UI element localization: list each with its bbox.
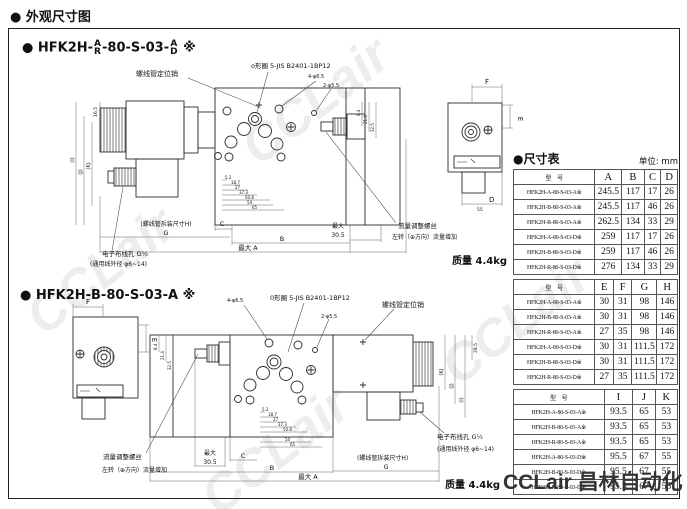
table-row: HFK2H-A-80-S-03-A※93.56553: [514, 405, 678, 420]
value-cell: 27: [595, 370, 614, 385]
value-cell: 172: [657, 355, 678, 370]
table-row: HFK2H-A-80-S-03-D※2591171726: [514, 230, 678, 245]
value-cell: 134: [622, 260, 645, 275]
value-cell: 33: [644, 215, 661, 230]
table-row: HFK2H-R-80-S-03-A※262.51343329: [514, 215, 678, 230]
vchain-dim: 21.4: [363, 115, 368, 124]
chain-dim-2: 65: [290, 442, 296, 447]
value-cell: 26: [661, 230, 678, 245]
dim-max-A: 最大 A: [238, 243, 258, 252]
dim-G: G: [163, 229, 168, 237]
model-cell: HFK2H-R-80-S-03-A※: [514, 325, 595, 340]
dim-E2: E: [150, 338, 158, 342]
col-D: D: [661, 170, 678, 185]
model-cell: HFK2H-A-80-S-03-D※: [514, 450, 605, 465]
dim-55: 55: [477, 207, 483, 213]
drawing-hfk2h-b: F E 4-φ6.5 0形圈 5-JIS B2401-1BP12 螺线管定位销 …: [16, 290, 512, 500]
leader-lines-2: [146, 303, 444, 453]
label-flow-increase-2: 左转（⊕方向）流量增加: [102, 466, 167, 474]
model-header: 型 号: [514, 170, 595, 185]
page-title: ● 外观尺寸图: [10, 6, 91, 25]
table-row: HFK2H-R-80-S-03-D※2761343329: [514, 260, 678, 275]
value-cell: 262.5: [595, 215, 622, 230]
label-4-holes: 4-φ6.5: [308, 74, 324, 80]
label-wiring-hole-2: 电子布线孔 G½: [437, 432, 483, 441]
value-cell: 65: [633, 420, 655, 435]
label-flow-screw-2: 流量调整螺丝: [103, 452, 143, 461]
value-cell: 67: [633, 450, 655, 465]
dim-G2: G: [383, 463, 388, 471]
value-cell: 93.5: [604, 420, 633, 435]
vchain-dim: 8.4: [356, 109, 361, 116]
mass-label: 质量 4.4kg: [452, 254, 507, 267]
dimension-table-abcd: 型 号 A B C D HFK2H-A-80-S-03-A※245.511717…: [513, 169, 678, 275]
table-row: HFK2H-A-80-S-03-D※3031111.5172: [514, 340, 678, 355]
value-cell: 35: [613, 325, 632, 340]
table-row: HFK2H-B-80-S-03-A※303198146: [514, 310, 678, 325]
chain-dim-2: 50.8: [283, 427, 292, 432]
flow-adjust-fitting-2: [195, 342, 230, 365]
table-row: HFK2H-A-80-S-03-A※245.51171726: [514, 185, 678, 200]
value-cell: 30: [595, 295, 614, 310]
model-cell: HFK2H-A-80-S-03-D※: [514, 340, 595, 355]
solenoid-assembly-2: [333, 335, 433, 420]
dim-F2: F: [86, 298, 90, 306]
model-cell: HFK2H-B-80-S-03-A※: [514, 420, 605, 435]
label-oring-2: 0形圈 5-JIS B2401-1BP12: [270, 294, 350, 302]
model-cell: HFK2H-A-80-S-03-A※: [514, 185, 595, 200]
dim-I: (I): [70, 157, 76, 162]
value-cell: 134: [622, 215, 645, 230]
value-cell: 26: [661, 200, 678, 215]
dim-28-5: 28.5: [473, 343, 479, 353]
value-cell: 53: [655, 420, 677, 435]
dim-B2: B: [270, 464, 274, 472]
col-B: B: [622, 170, 645, 185]
dim-D: D: [489, 196, 494, 204]
label-wire-od: (通用线外径 φ6~14): [90, 260, 147, 268]
table-title: ●尺寸表: [513, 150, 559, 167]
model-title-1-prefix: ● HFK2H-: [22, 41, 93, 56]
model-cell: HFK2H-B-80-S-03-A※: [514, 310, 595, 325]
value-cell: 26: [661, 185, 678, 200]
value-cell: 95.5: [604, 450, 633, 465]
value-cell: 27: [595, 325, 614, 340]
value-cell: 117: [622, 245, 645, 260]
label-2-holes: 2-φ5.5: [323, 83, 339, 89]
value-cell: 117: [622, 230, 645, 245]
value-cell: 30: [595, 340, 614, 355]
drawing-hfk2h-ar: 螺线管定位销 o形圈 5-JIS B2401-1BP12 4-φ6.5 2-φ5…: [16, 56, 512, 281]
dim-C: C: [220, 220, 225, 228]
label-solenoid-pin: 螺线管定位销: [136, 69, 178, 78]
value-cell: 31: [613, 310, 632, 325]
value-cell: 93.5: [604, 435, 633, 450]
dimension-tables: ●尺寸表 单位: mm 型 号 A B C D HFK2H-A-80-S-03-…: [513, 150, 678, 499]
table-header-row: 型 号 E F G H: [514, 280, 678, 295]
col-K: K: [655, 390, 677, 405]
col-C: C: [644, 170, 661, 185]
value-cell: 245.5: [595, 185, 622, 200]
col-I: I: [604, 390, 633, 405]
value-cell: 35: [613, 370, 632, 385]
label-flow-increase: 左转（⊕方向）流量增加: [392, 233, 457, 241]
value-cell: 111.5: [632, 355, 657, 370]
brand-watermark: CCLair 昌林自动化: [503, 466, 683, 496]
dim-30-5: 30.5: [331, 232, 345, 239]
value-cell: 30: [595, 355, 614, 370]
table-row: HFK2H-A-80-S-03-A※303198146: [514, 295, 678, 310]
label-2-holes-2: 2-φ5.5: [321, 314, 337, 320]
value-cell: 53: [655, 435, 677, 450]
model-cell: HFK2H-R-80-S-03-A※: [514, 435, 605, 450]
value-cell: 111.5: [632, 340, 657, 355]
dim-J: (J): [78, 169, 84, 174]
table-header-row: 型 号 I J K: [514, 390, 678, 405]
model-cell: HFK2H-B-80-S-03-A※: [514, 200, 595, 215]
col-F: F: [613, 280, 632, 295]
value-cell: 65: [633, 435, 655, 450]
model-title-1-suffix: ※: [183, 41, 196, 56]
dim-I2: (I): [459, 397, 465, 402]
chain-dim: 65: [252, 205, 258, 210]
dim-K: (K): [86, 162, 92, 169]
value-cell: 276: [595, 260, 622, 275]
model-title-1: ● HFK2H-AR-80-S-03-AD ※: [22, 40, 196, 56]
dim-C2: C: [241, 452, 246, 460]
table-title-row: ●尺寸表 单位: mm: [513, 150, 678, 167]
dim-30-5-2: 30.5: [203, 459, 217, 466]
dim-J2: (J): [449, 383, 455, 388]
value-cell: 46: [644, 245, 661, 260]
dim-max-A2: 最大 A: [298, 472, 318, 481]
value-cell: 259: [595, 230, 622, 245]
col-E: E: [595, 280, 614, 295]
label-removal-h: (螺线管拆装尺寸H): [140, 220, 191, 228]
value-cell: 245.5: [595, 200, 622, 215]
label-wiring-hole: 电子布线孔 G½: [102, 249, 148, 258]
value-cell: 33: [644, 260, 661, 275]
value-cell: 98: [632, 295, 657, 310]
label-4-holes-2: 4-φ6.5: [227, 298, 243, 304]
value-cell: 46: [644, 200, 661, 215]
table-row: HFK2H-B-80-S-03-A※93.56553: [514, 420, 678, 435]
table-row: HFK2H-B-80-S-03-D※3031111.5172: [514, 355, 678, 370]
value-cell: 29: [661, 215, 678, 230]
dim-16-5: 16.5: [93, 107, 99, 117]
label-max: 最大: [332, 222, 344, 230]
model-option-ar: AR: [94, 40, 101, 56]
mass-label-2: 质量 4.4kg: [445, 478, 500, 491]
model-cell: HFK2H-R-80-S-03-D※: [514, 370, 595, 385]
model-option-ad: AD: [170, 40, 177, 56]
value-cell: 17: [644, 230, 661, 245]
value-cell: 55: [655, 450, 677, 465]
end-view-2: [73, 317, 138, 419]
value-cell: 31: [613, 295, 632, 310]
value-cell: 117: [622, 185, 645, 200]
col-J: J: [633, 390, 655, 405]
table-unit: 单位: mm: [639, 155, 678, 167]
catalog-page: CCLair CCLair CCLair CCLair ● 外观尺寸图 ● HF…: [0, 0, 687, 509]
value-cell: 117: [622, 200, 645, 215]
value-cell: 26: [661, 245, 678, 260]
table-row: HFK2H-B-80-S-03-D※2591174626: [514, 245, 678, 260]
value-cell: 98: [632, 310, 657, 325]
value-cell: 259: [595, 245, 622, 260]
dimension-table-efgh: 型 号 E F G H HFK2H-A-80-S-03-A※303198146H…: [513, 279, 678, 385]
label-oring: o形圈 5-JIS B2401-1BP12: [251, 62, 331, 70]
label-flow-screw: 流量调整螺丝: [398, 221, 438, 230]
value-cell: 146: [657, 295, 678, 310]
table-row: HFK2H-R-80-S-03-A※273598146: [514, 325, 678, 340]
col-H: H: [657, 280, 678, 295]
model-cell: HFK2H-B-80-S-03-D※: [514, 245, 595, 260]
label-wire-od-2: (通用线外径 φ6~14): [437, 445, 494, 453]
table-header-row: 型 号 A B C D: [514, 170, 678, 185]
value-cell: 30: [595, 310, 614, 325]
model-header: 型 号: [514, 280, 595, 295]
vchain-dim-2: 8.4: [153, 343, 158, 350]
vchain-dim-2: 32.5: [167, 361, 172, 370]
value-cell: 146: [657, 310, 678, 325]
end-view: [448, 103, 502, 193]
value-cell: 146: [657, 325, 678, 340]
value-cell: 172: [657, 340, 678, 355]
dim-B: B: [280, 235, 284, 243]
value-cell: 65: [633, 405, 655, 420]
col-A: A: [595, 170, 622, 185]
value-cell: 53: [655, 405, 677, 420]
dim-E: E: [516, 117, 524, 121]
label-removal-h-2: (螺线管拆装尺寸H): [357, 454, 408, 462]
dim-F: F: [485, 78, 489, 86]
table-row: HFK2H-A-80-S-03-D※95.56755: [514, 450, 678, 465]
table-row: HFK2H-R-80-S-03-A※93.56553: [514, 435, 678, 450]
value-cell: 31: [613, 355, 632, 370]
value-cell: 98: [632, 325, 657, 340]
value-cell: 172: [657, 370, 678, 385]
table-row: HFK2H-B-80-S-03-A※245.51174626: [514, 200, 678, 215]
label-solenoid-pin-2: 螺线管定位销: [382, 300, 424, 309]
model-cell: HFK2H-R-80-S-03-A※: [514, 215, 595, 230]
flow-adjust-fitting: [321, 114, 365, 139]
valve-body: [215, 88, 401, 225]
model-title-1-mid: -80-S-03-: [102, 41, 169, 56]
dim-K2: (K): [439, 368, 445, 375]
model-cell: HFK2H-A-80-S-03-A※: [514, 405, 605, 420]
col-G: G: [632, 280, 657, 295]
model-cell: HFK2H-B-80-S-03-D※: [514, 355, 595, 370]
label-max-2: 最大: [204, 449, 216, 457]
vchain-dim-2: 21.4: [160, 351, 165, 360]
model-cell: HFK2H-A-80-S-03-A※: [514, 295, 595, 310]
value-cell: 17: [644, 185, 661, 200]
value-cell: 29: [661, 260, 678, 275]
model-header: 型 号: [514, 390, 605, 405]
valve-body-2: [150, 335, 333, 437]
value-cell: 31: [613, 340, 632, 355]
value-cell: 93.5: [604, 405, 633, 420]
value-cell: 111.5: [632, 370, 657, 385]
table-row: HFK2H-R-80-S-03-D※2735111.5172: [514, 370, 678, 385]
model-cell: HFK2H-R-80-S-03-D※: [514, 260, 595, 275]
vchain-dim: 32.5: [370, 123, 375, 132]
model-cell: HFK2H-A-80-S-03-D※: [514, 230, 595, 245]
